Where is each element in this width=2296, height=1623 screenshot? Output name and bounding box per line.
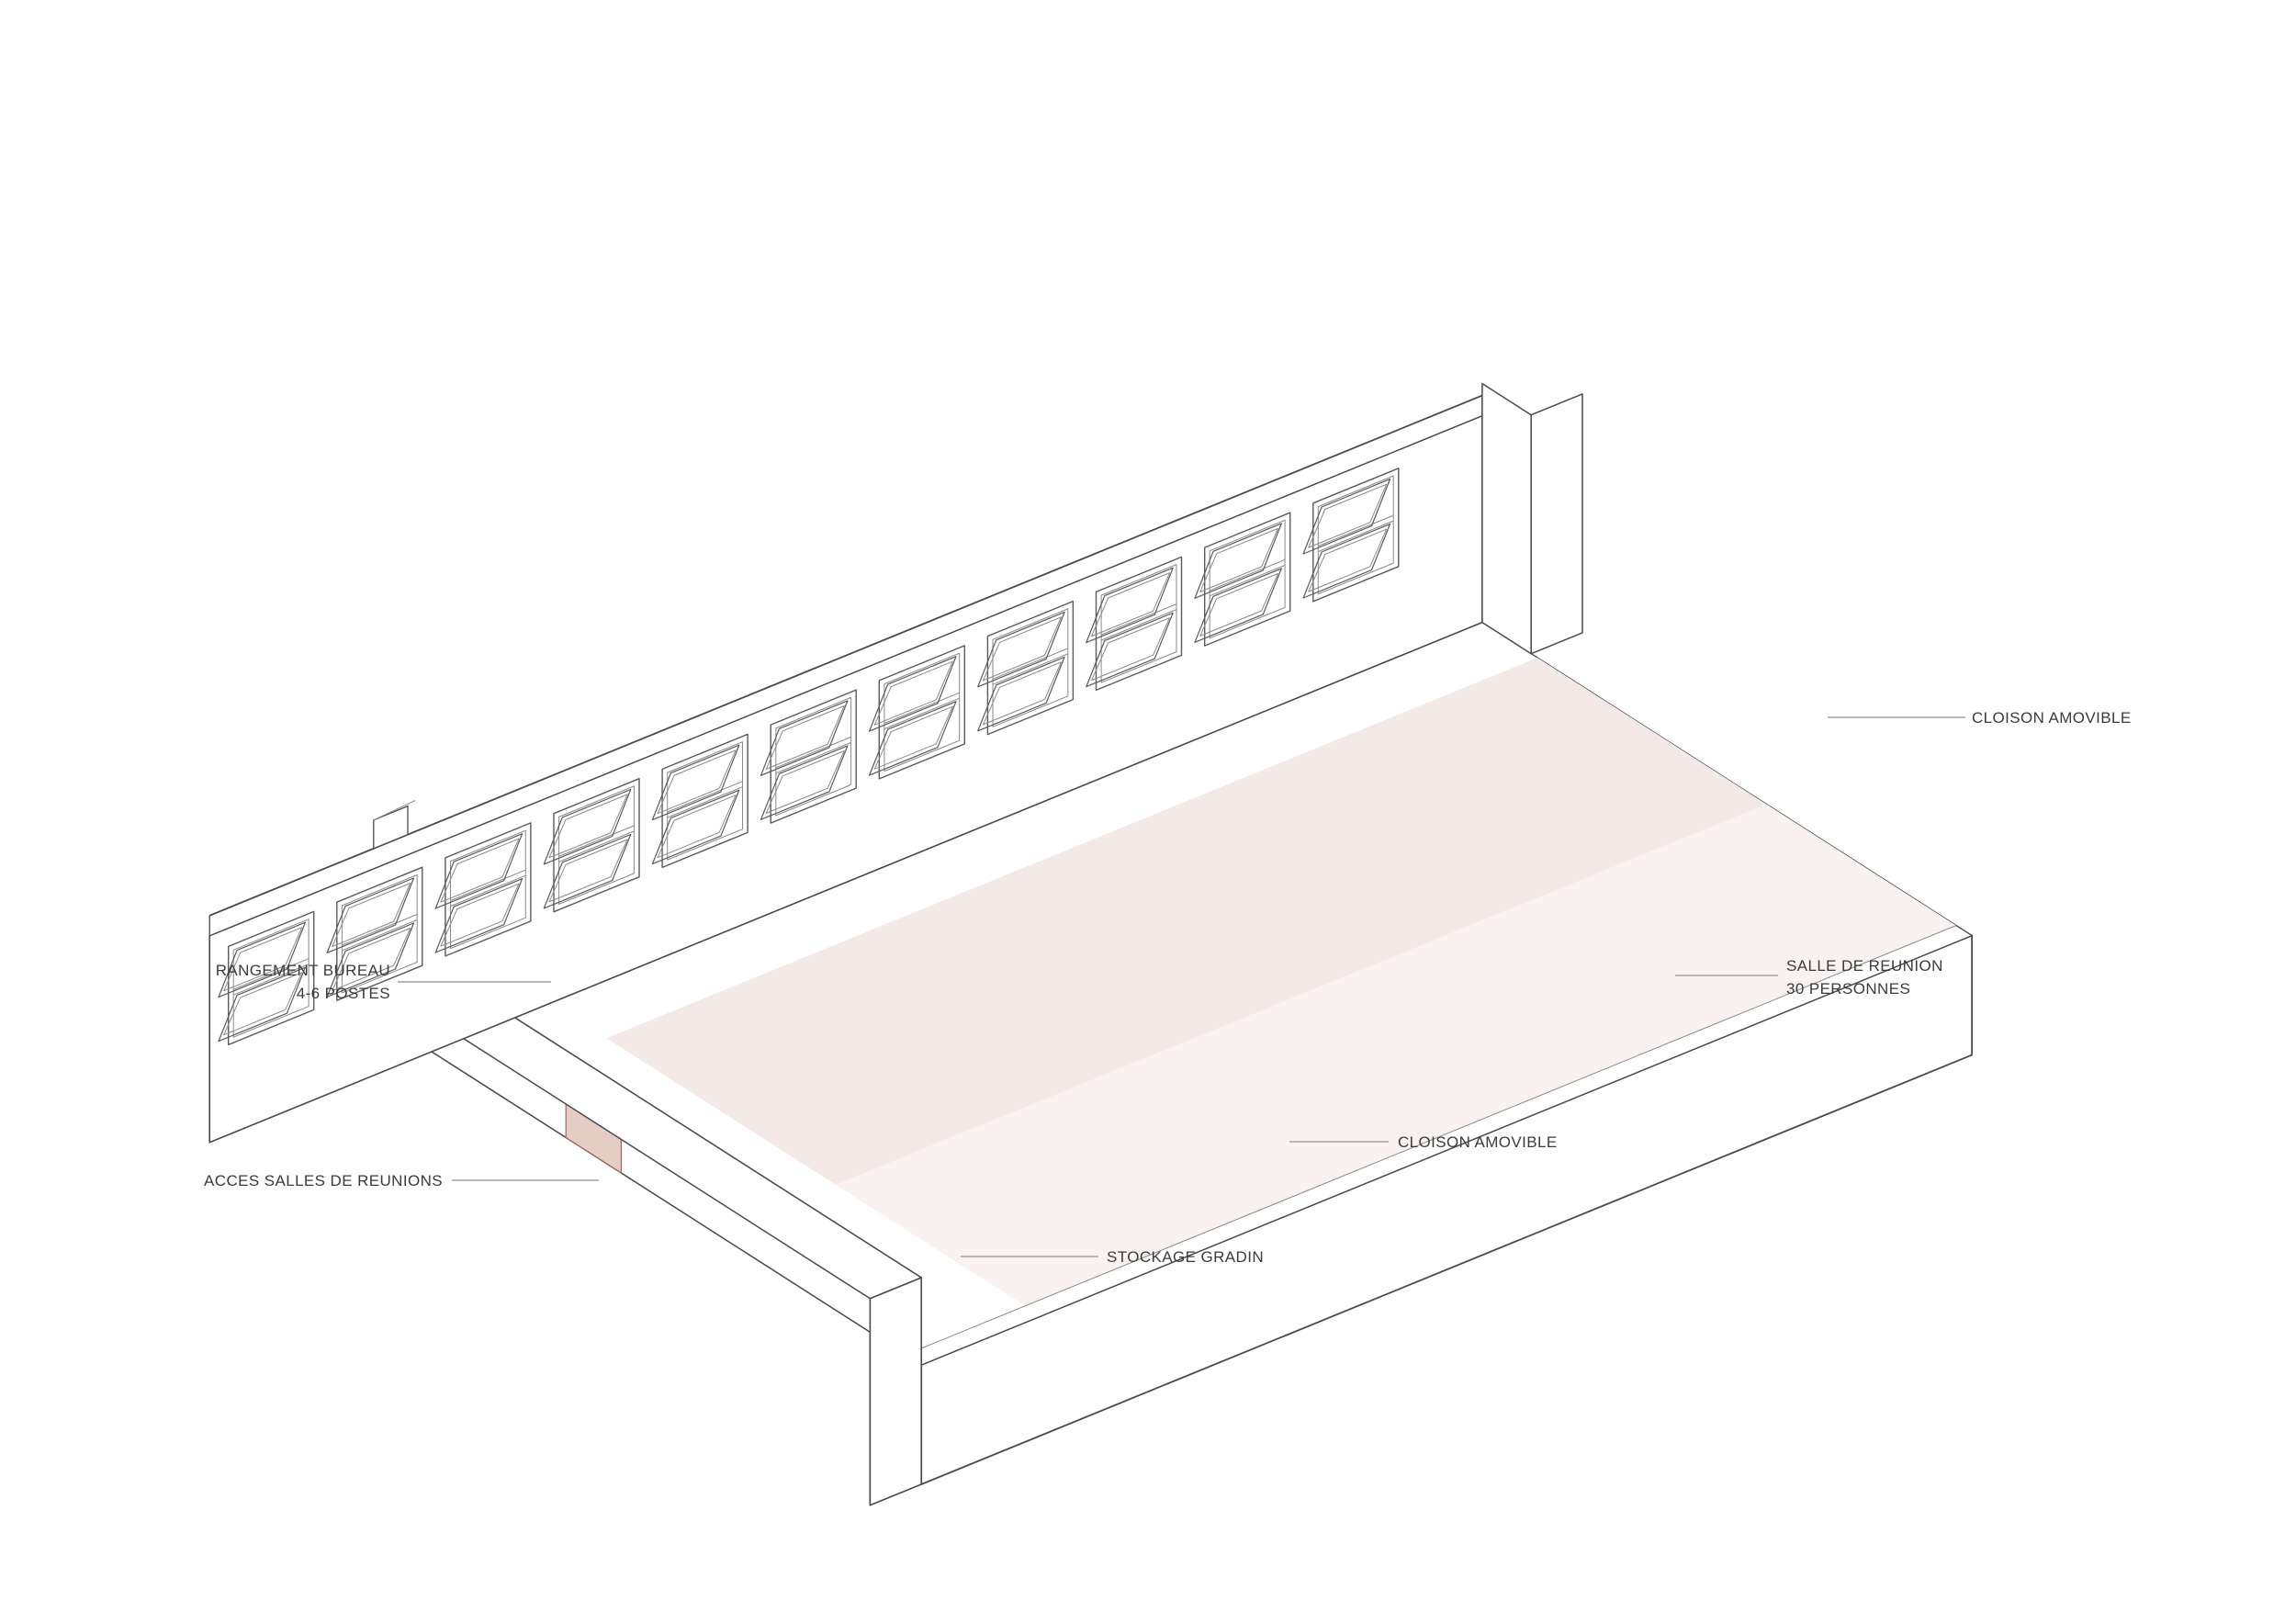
label-line: CLOISON AMOVIBLE <box>1972 706 2132 729</box>
label-stockage-gradin: STOCKAGE GRADIN <box>1107 1245 1264 1268</box>
leader-lines <box>0 0 2296 1623</box>
label-cloison-amovible-top: CLOISON AMOVIBLE <box>1972 706 2132 729</box>
label-cloison-amovible-bottom: CLOISON AMOVIBLE <box>1398 1131 1558 1154</box>
label-line: 30 PERSONNES <box>1786 977 1943 1000</box>
label-line: ACCES SALLES DE REUNIONS <box>156 1169 443 1192</box>
label-line: CLOISON AMOVIBLE <box>1398 1131 1558 1154</box>
label-line: RANGEMENT BUREAU <box>138 959 390 982</box>
label-acces-salles: ACCES SALLES DE REUNIONS <box>156 1169 443 1192</box>
label-line: 4-6 POSTES <box>138 982 390 1005</box>
label-rangement-bureau: RANGEMENT BUREAU 4-6 POSTES <box>138 959 390 1005</box>
label-salle-de-reunion: SALLE DE REUNION 30 PERSONNES <box>1786 954 1943 1000</box>
label-line: SALLE DE REUNION <box>1786 954 1943 977</box>
label-line: STOCKAGE GRADIN <box>1107 1245 1264 1268</box>
diagram-stage: RANGEMENT BUREAU 4-6 POSTES ACCES SALLES… <box>0 0 2296 1623</box>
